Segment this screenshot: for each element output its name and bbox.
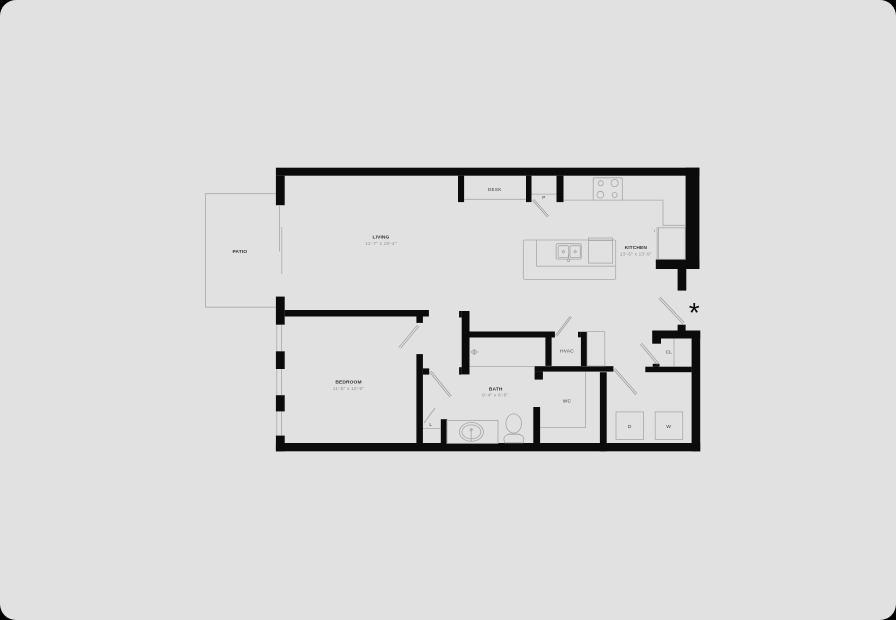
svg-text:W: W bbox=[666, 424, 671, 430]
svg-text:CL: CL bbox=[666, 349, 673, 354]
svg-text:13'-5" x 13'-9": 13'-5" x 13'-9" bbox=[620, 252, 652, 257]
svg-text:WC: WC bbox=[563, 399, 572, 404]
svg-text:LIVING: LIVING bbox=[373, 235, 390, 241]
svg-text:BEDROOM: BEDROOM bbox=[335, 380, 361, 386]
svg-text:*: * bbox=[689, 297, 700, 328]
svg-text:DESK: DESK bbox=[488, 187, 502, 192]
svg-text:D: D bbox=[628, 424, 632, 430]
svg-text:11'-5" x 10'-6": 11'-5" x 10'-6" bbox=[333, 386, 365, 391]
svg-text:KITCHEN: KITCHEN bbox=[625, 245, 648, 251]
svg-text:L: L bbox=[429, 422, 432, 427]
svg-text:PATIO: PATIO bbox=[232, 249, 247, 255]
svg-text:HVAC: HVAC bbox=[560, 349, 574, 354]
svg-text:P: P bbox=[542, 195, 545, 200]
svg-text:9'-4" x 8'-6": 9'-4" x 8'-6" bbox=[482, 392, 508, 397]
svg-text:11'-7" x 19'-4": 11'-7" x 19'-4" bbox=[365, 241, 397, 246]
